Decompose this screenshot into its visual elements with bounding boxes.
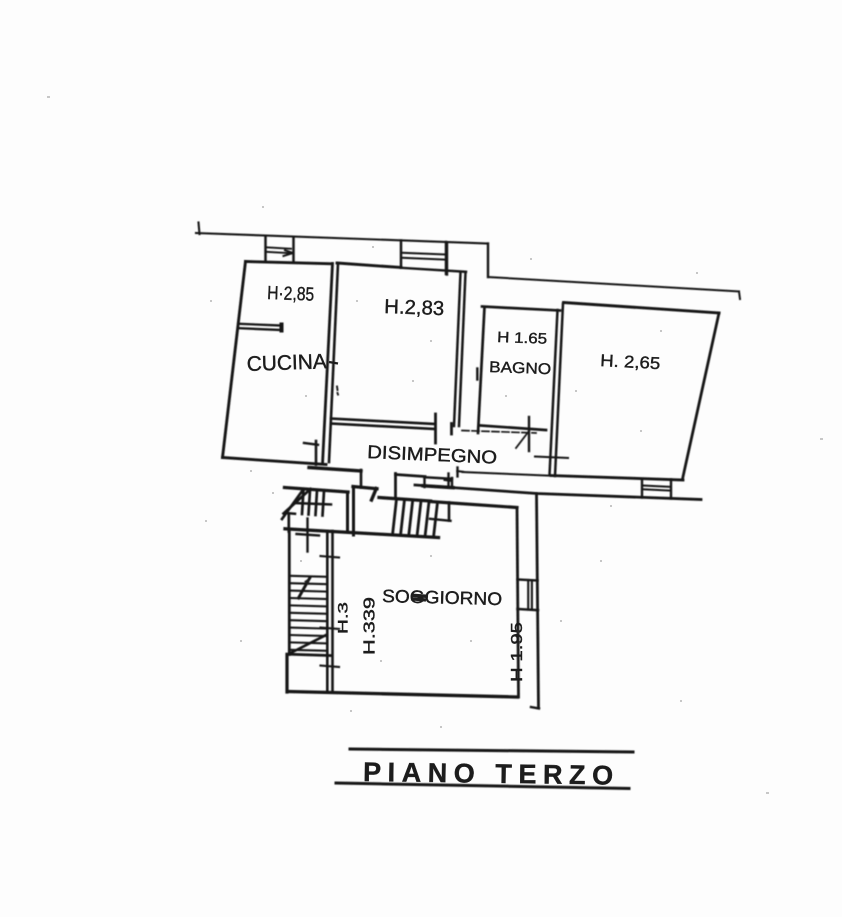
svg-text:H 1.95: H 1.95 [509,622,526,682]
svg-text:H.339: H.339 [362,597,379,655]
svg-text:SOGGIORNO: SOGGIORNO [382,586,502,609]
svg-text:CUCINA: CUCINA [246,350,327,376]
svg-text:H.2,83: H.2,83 [384,296,445,320]
svg-text:DISIMPEGNO: DISIMPEGNO [367,441,498,468]
svg-text:H. 2,65: H. 2,65 [600,351,661,373]
svg-text:BAGNO: BAGNO [489,359,552,378]
svg-text:H·2,85: H·2,85 [267,283,315,306]
svg-text:H 1.65: H 1.65 [497,329,548,348]
svg-text:H.3: H.3 [335,602,351,634]
